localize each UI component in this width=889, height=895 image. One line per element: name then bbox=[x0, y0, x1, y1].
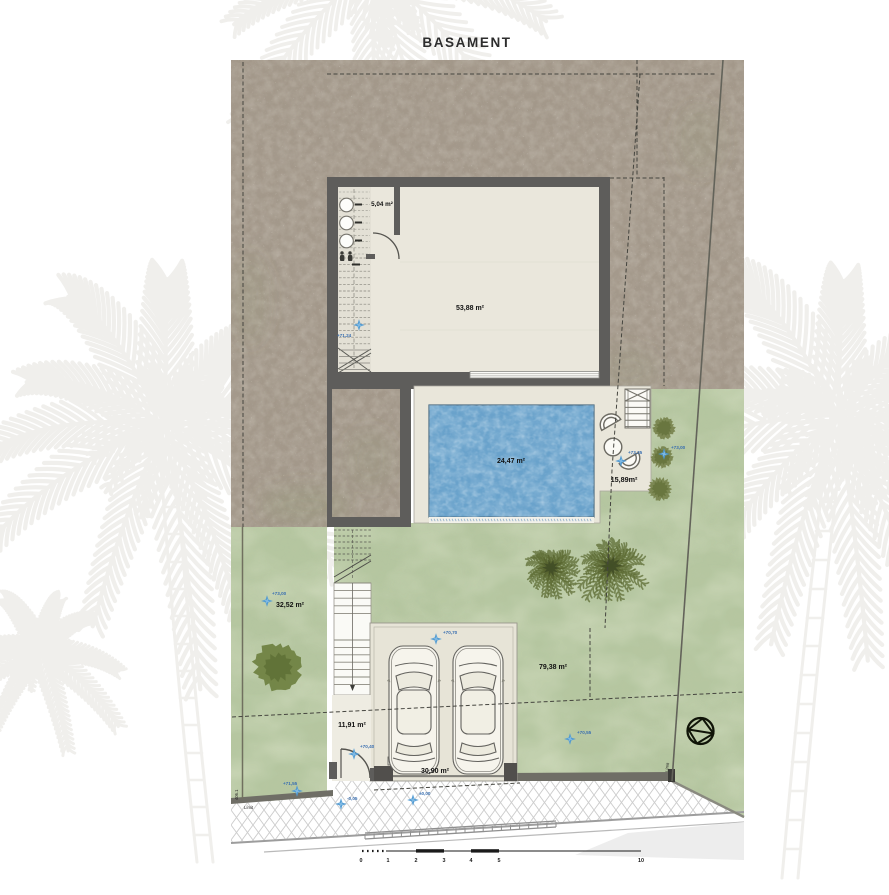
svg-text:+70,40: +70,40 bbox=[360, 744, 375, 749]
svg-text:+71,24: +71,24 bbox=[337, 333, 352, 338]
svg-text:11,91 m²: 11,91 m² bbox=[338, 722, 366, 729]
svg-text:4: 4 bbox=[470, 858, 473, 864]
svg-text:2: 2 bbox=[415, 858, 418, 864]
svg-text:+70,70: +70,70 bbox=[443, 630, 458, 635]
svg-text:53,88 m²: 53,88 m² bbox=[456, 305, 485, 312]
svg-text:79,38 m²: 79,38 m² bbox=[539, 664, 568, 671]
svg-text:24,47 m²: 24,47 m² bbox=[497, 458, 526, 465]
svg-text:3: 3 bbox=[443, 858, 446, 864]
svg-text:-0,05: -0,05 bbox=[347, 796, 358, 801]
svg-text:+71,55: +71,55 bbox=[283, 781, 298, 786]
svg-text:1: 1 bbox=[387, 858, 390, 864]
svg-text:15,89m²: 15,89m² bbox=[611, 475, 638, 484]
svg-text:406.1: 406.1 bbox=[234, 789, 239, 800]
svg-text:32,52 m²: 32,52 m² bbox=[276, 602, 305, 609]
svg-text:±0,00: ±0,00 bbox=[419, 791, 431, 796]
svg-text:BASAMENT: BASAMENT bbox=[422, 35, 511, 50]
svg-text:10: 10 bbox=[638, 858, 644, 864]
svg-text:5,04 m²: 5,04 m² bbox=[371, 201, 393, 208]
svg-text:5: 5 bbox=[498, 858, 501, 864]
svg-text:30,90 m²: 30,90 m² bbox=[421, 768, 450, 775]
svg-text:+70,55: +70,55 bbox=[577, 730, 592, 735]
svg-text:Límit: Límit bbox=[244, 805, 254, 810]
svg-text:+73,00: +73,00 bbox=[272, 591, 287, 596]
svg-text:+73,00: +73,00 bbox=[671, 445, 686, 450]
svg-text:+73,35: +73,35 bbox=[628, 450, 643, 455]
svg-text:0: 0 bbox=[360, 858, 363, 864]
